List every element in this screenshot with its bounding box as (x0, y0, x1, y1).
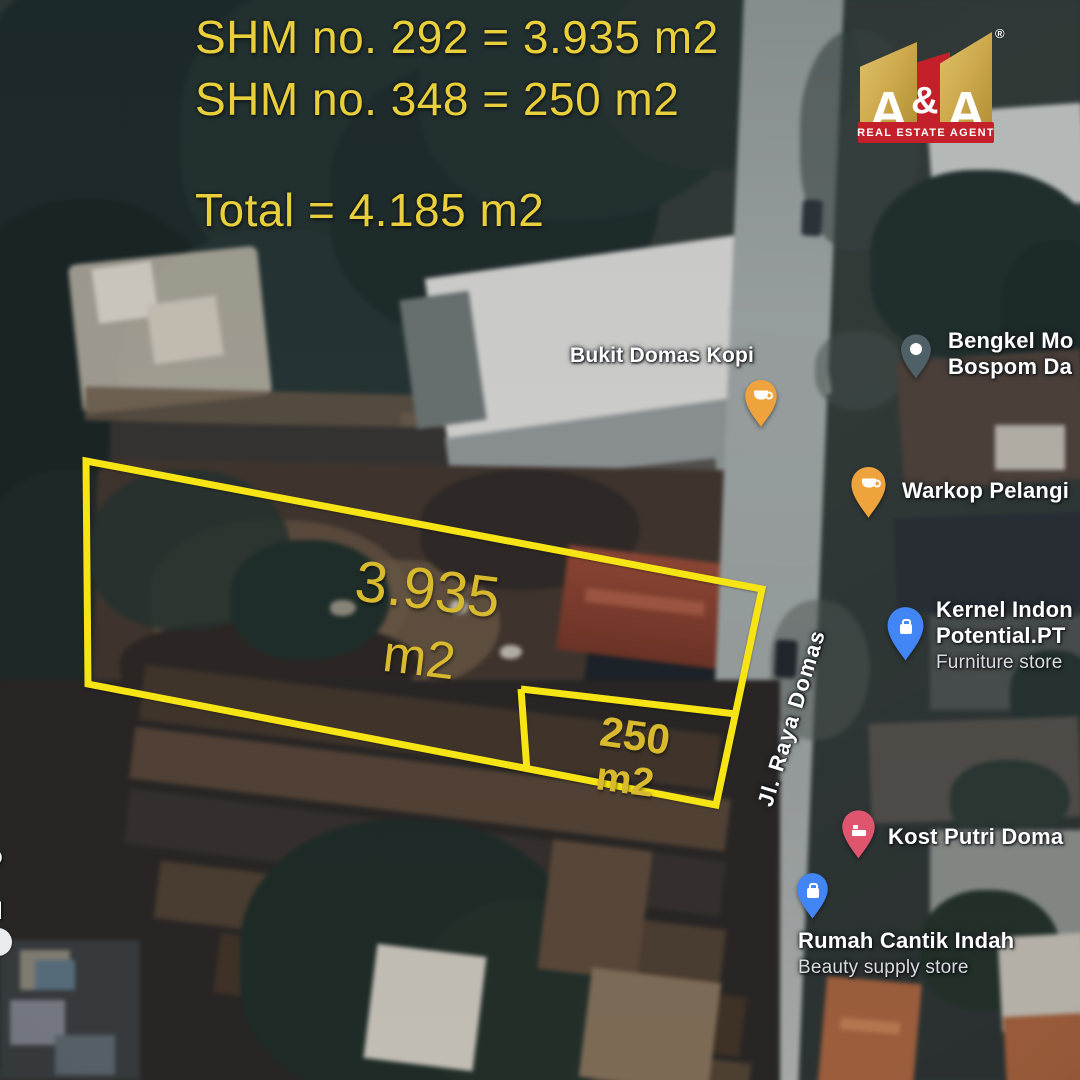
poi-label-bukit-domas-kopi: Bukit Domas Kopi (570, 344, 754, 368)
coffee-pin (849, 465, 888, 521)
coffee-pin (743, 378, 779, 430)
poi-label-bengkel: Bengkel Mo Bospom Da (948, 328, 1073, 380)
coffee-cup-icon (754, 391, 768, 400)
poi-label-line1: Rumah Cantik Indah (798, 928, 1014, 953)
shopping-bag-icon (900, 624, 912, 634)
shopping-pin (885, 605, 926, 664)
registered-trademark-icon: ® (995, 26, 1005, 41)
real-estate-map-flyer: SHM no. 292 = 3.935 m2 SHM no. 348 = 250… (0, 0, 1080, 1080)
edge-label-fragment: o (0, 843, 3, 871)
big-plot-area-unit: m2 (380, 624, 459, 692)
place-pin (899, 332, 933, 382)
poi-label-line2: Potential.PT (936, 623, 1066, 648)
small-plot-divider-left (521, 689, 527, 771)
poi-label-kost-putri: Kost Putri Doma (888, 824, 1063, 850)
poi-label-warkop-pelangi: Warkop Pelangi (902, 478, 1069, 504)
poi-label-line2: Bospom Da (948, 354, 1072, 379)
agency-logo: A A & ® REAL ESTATE AGENT (850, 14, 1022, 148)
place-dot-icon (910, 343, 922, 355)
shopping-bag-icon (807, 888, 819, 898)
shopping-pin (795, 871, 830, 922)
poi-label-subtitle: Beauty supply store (798, 957, 1014, 979)
lodging-pin (840, 808, 877, 862)
bed-icon (852, 830, 866, 836)
poi-label-line1: Bengkel Mo (948, 328, 1073, 353)
poi-label-rumah-cantik: Rumah Cantik Indah Beauty supply store (798, 928, 1014, 979)
poi-label-kernel: Kernel Indon Potential.PT Furniture stor… (936, 597, 1073, 674)
small-plot-area-unit: m2 (593, 754, 657, 807)
logo-ampersand: & (911, 82, 938, 120)
logo-banner: REAL ESTATE AGENT (858, 122, 994, 143)
plot-boundaries (0, 0, 1080, 1080)
poi-label-line1: Kernel Indon (936, 597, 1073, 622)
poi-label-subtitle: Furniture store (936, 652, 1073, 674)
coffee-cup-icon (862, 479, 876, 488)
edge-label-fragment: d (0, 898, 3, 926)
